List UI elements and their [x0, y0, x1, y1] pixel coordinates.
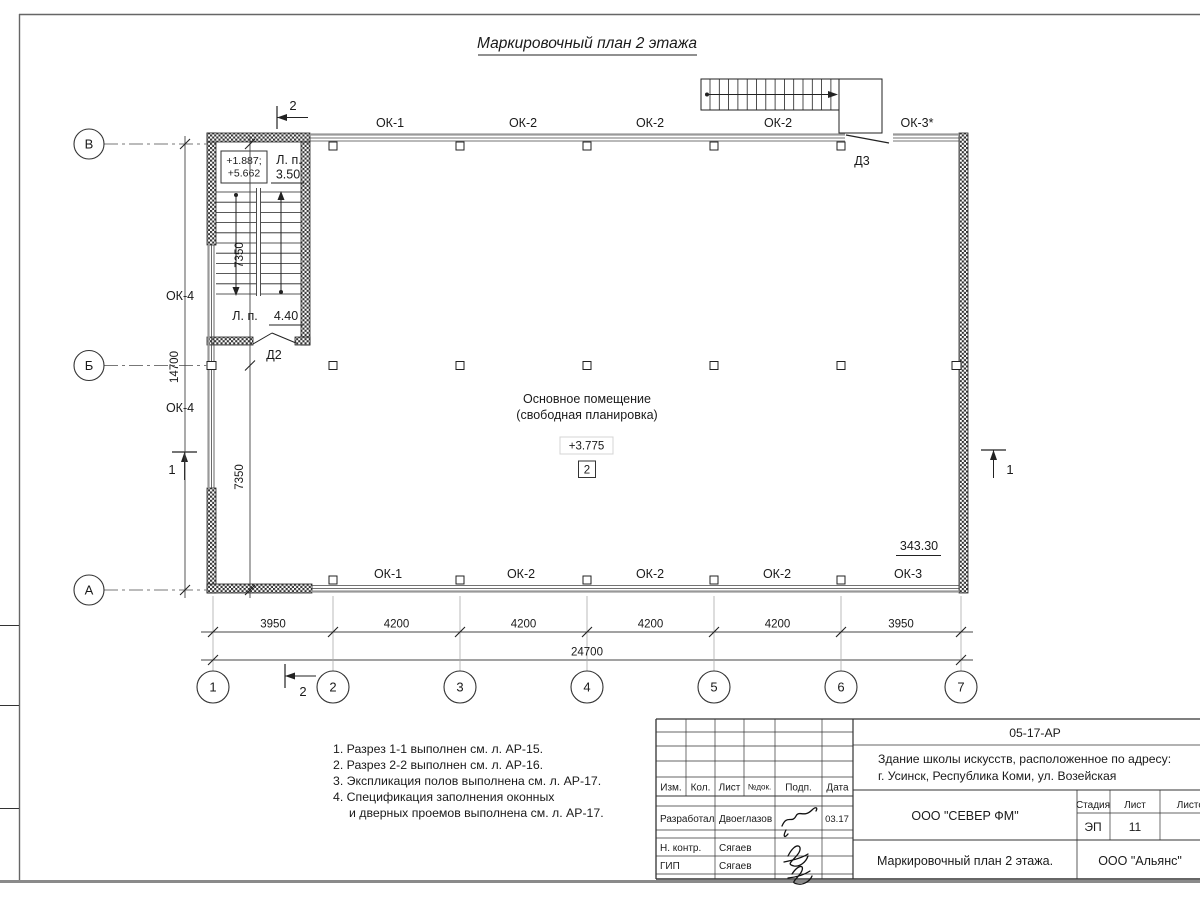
- dim-bottom: 3950: [260, 619, 286, 631]
- dim-bottom: 3950: [888, 619, 914, 631]
- tb-list-value: 11: [1129, 820, 1142, 834]
- axis-col: 3: [456, 680, 463, 695]
- tb-sheet-caption: Маркировочный план 2 этажа.: [877, 854, 1053, 868]
- tb-col-podp: Подп.: [785, 783, 812, 794]
- note-line: 2. Разрез 2-2 выполнен см. л. АР-16.: [333, 758, 543, 772]
- tb-col-list: Лист: [719, 783, 741, 794]
- section-mark-1-left: 1: [168, 462, 175, 477]
- stair-down-arrowhead: [233, 287, 240, 296]
- dimension-labels: 3950 4200 4200 4200 4200 3950 24700 7350…: [169, 242, 914, 658]
- wall-left-top: [207, 133, 216, 245]
- window-label: ОК-3: [894, 567, 922, 581]
- window-label: ОК-2: [763, 567, 791, 581]
- section-mark-1-right: 1: [1006, 462, 1013, 477]
- tb-name-gip: Сягаев: [719, 861, 752, 872]
- axis-col: 7: [957, 680, 964, 695]
- axis-col: 6: [837, 680, 844, 695]
- axis-col: 5: [710, 680, 717, 695]
- landing-abbr-top: Л. п.: [276, 153, 301, 167]
- window-label: ОК-2: [509, 116, 537, 130]
- room-number: 2: [584, 465, 590, 477]
- door-d3-leaf: [846, 135, 889, 143]
- tb-col-data: Дата: [826, 783, 849, 794]
- tb-stage-label: Стадия: [1076, 800, 1110, 811]
- tb-company: ООО "СЕВЕР ФМ": [911, 809, 1018, 823]
- tb-col-kol: Кол.: [691, 783, 711, 794]
- axis-row: В: [85, 137, 94, 152]
- tb-list-label: Лист: [1124, 800, 1146, 811]
- column-piers: [207, 142, 961, 584]
- wall-left-bottom: [207, 488, 216, 593]
- section-mark-2-top: 2: [289, 98, 296, 113]
- dim-left: 7350: [234, 242, 246, 268]
- drawing-sheet: Маркировочный план 2 этажа: [0, 0, 1200, 900]
- wall-bottom-left: [207, 584, 312, 593]
- room-area: 343.30: [900, 539, 938, 553]
- stair-elevation-2: +5.662: [228, 168, 261, 180]
- wall-stair-top: [207, 133, 310, 142]
- floor-plan-drawing: Маркировочный план 2 этажа: [0, 0, 1200, 900]
- window-label: ОК-2: [764, 116, 792, 130]
- tb-role-gip: ГИП: [660, 861, 680, 872]
- dim-bottom: 4200: [638, 619, 664, 631]
- tb-contractor: ООО "Альянс": [1098, 854, 1182, 868]
- axis-col: 1: [209, 680, 216, 695]
- dim-left: 7350: [234, 464, 246, 490]
- tb-role-developed: Разработал: [660, 813, 715, 825]
- dim-bottom-total: 24700: [571, 647, 603, 659]
- window-label: ОК-1: [374, 567, 402, 581]
- tb-col-ndok: №док.: [748, 783, 771, 792]
- exterior-stair: Д3: [701, 79, 889, 168]
- tb-col-izm: Изм.: [660, 783, 681, 794]
- tb-object-line2: г. Усинск, Республика Коми, ул. Возейска…: [878, 769, 1116, 783]
- dim-bottom: 4200: [511, 619, 537, 631]
- room-name-line2: (свободная планировка): [516, 408, 657, 422]
- window-label: ОК-1: [376, 116, 404, 130]
- tb-role-ncontr: Н. контр.: [660, 843, 701, 854]
- wall-stair-bottom-right: [295, 337, 310, 345]
- tb-name-developed: Двоеглазов: [719, 814, 772, 825]
- window-label: ОК-2: [507, 567, 535, 581]
- door-d3-label: Д3: [854, 154, 869, 168]
- signature-ncontr: [784, 846, 808, 866]
- landing-width-bottom: 4.40: [274, 309, 298, 323]
- stair-elevation-1: +1.887;: [226, 155, 261, 167]
- tb-date-developed: 03.17: [825, 814, 849, 825]
- dim-bottom: 4200: [765, 619, 791, 631]
- title-block: Изм. Кол. Лист №док. Подп. Дата Разработ…: [656, 719, 1200, 884]
- wall-stair-right: [301, 142, 310, 345]
- tb-object-line1: Здание школы искусств, расположенное по …: [878, 752, 1171, 766]
- axis-col: 4: [583, 680, 590, 695]
- signatures: [782, 808, 817, 884]
- room-annotation: Основное помещение (свободная планировка…: [516, 392, 941, 556]
- window-label: ОК-3*: [901, 116, 934, 130]
- notes: 1. Разрез 1-1 выполнен см. л. АР-15. 2. …: [333, 742, 604, 820]
- landing-width-top: 3.50: [276, 168, 300, 182]
- section-mark-2-bottom: 2: [299, 684, 306, 699]
- tb-stage-value: ЭП: [1084, 820, 1101, 834]
- axis-row: Б: [85, 358, 94, 373]
- window-label: ОК-2: [636, 567, 664, 581]
- dim-left-total: 14700: [169, 351, 181, 383]
- room-name-line1: Основное помещение: [523, 392, 651, 406]
- door-d2-leaf: [272, 333, 296, 343]
- drawing-title: Маркировочный план 2 этажа: [477, 35, 697, 55]
- window-label: ОК-4: [166, 401, 194, 415]
- note-line: 3. Экспликация полов выполнена см. л. АР…: [333, 774, 601, 788]
- tb-name-ncontr: Сягаев: [719, 843, 752, 854]
- interior-stair: +1.887; +5.662 Л. п. 3.50 Л. п. 4.40 Д2: [216, 151, 304, 362]
- note-line: 4. Спецификация заполнения оконных: [333, 790, 555, 804]
- window-label: ОК-4: [166, 289, 194, 303]
- axis-row: А: [85, 583, 94, 598]
- room-elevation: +3.775: [569, 441, 605, 453]
- door-d2-label: Д2: [266, 348, 281, 362]
- note-line: 1. Разрез 1-1 выполнен см. л. АР-15.: [333, 742, 543, 756]
- door-d2-leaf: [253, 333, 272, 344]
- exterior-stair-landing: [839, 79, 882, 133]
- window-label: ОК-2: [636, 116, 664, 130]
- tb-doc-code: 05-17-АР: [1009, 726, 1061, 740]
- note-line: и дверных проемов выполнена см. л. АР-17…: [349, 806, 604, 820]
- landing-abbr-bottom: Л. п.: [232, 309, 257, 323]
- tb-listov-label: Листов: [1177, 800, 1200, 811]
- signature-developed: [782, 808, 817, 837]
- dim-bottom: 4200: [384, 619, 410, 631]
- axis-col: 2: [329, 680, 336, 695]
- drawing-title-text: Маркировочный план 2 этажа: [477, 35, 697, 52]
